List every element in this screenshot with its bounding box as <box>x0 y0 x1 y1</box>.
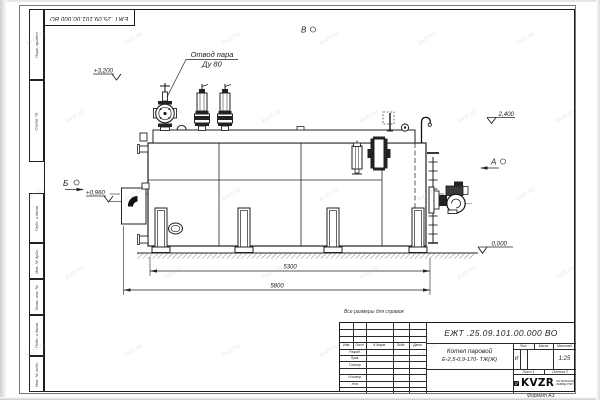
water-level-gauge <box>352 141 362 175</box>
col-data: Дата <box>409 342 426 348</box>
logo-sub2: ЗАВОД РЭП <box>556 383 575 386</box>
role-utv: Утв. <box>340 381 368 387</box>
elevation-mark-ground: 0,000 <box>478 240 513 253</box>
elevation-value: +0,960 <box>86 189 106 196</box>
role-tkontr: Т.контр. <box>340 361 368 367</box>
deck-instruments <box>297 112 409 131</box>
view-label-a: А <box>480 158 506 170</box>
view-label-v: В <box>301 26 316 35</box>
format-label: Формат А3 <box>527 393 554 399</box>
view-label-b: Б <box>63 179 84 191</box>
dimension-value: 5800 <box>270 284 284 290</box>
drawing-sheet: Перв. примен. Справ. № Подп. и дата Инв.… <box>0 0 600 400</box>
doc-number: ЕЖТ .25.09.101.00.000 ВО <box>426 323 576 343</box>
col-ndocum: N докум. <box>366 342 393 348</box>
view-letter: Б <box>63 179 68 188</box>
kvzr-logo-text: KVZR <box>521 377 554 389</box>
elevation-value: 0,000 <box>492 240 508 247</box>
elevation-value: +3,200 <box>94 68 114 75</box>
col-podp: Подп. <box>393 342 409 348</box>
kvzr-logo-icon <box>514 377 519 390</box>
safety-valve-1 <box>195 84 210 131</box>
furnace-door <box>122 183 150 224</box>
view-letter: В <box>301 26 307 35</box>
deck-fitting <box>176 125 188 130</box>
reference-note: Все размеры для справок <box>344 309 404 315</box>
dimension-inner: 5300 <box>150 257 430 295</box>
dimension-value: 5300 <box>283 265 297 271</box>
callout-line2: Ду 80 <box>201 60 222 69</box>
steam-outlet-valve <box>154 83 177 131</box>
product-name-line2: Е-2,5-0,9-170- ТЖ(Ж) <box>442 356 497 364</box>
burner <box>429 182 472 214</box>
hdr-mass: Масса <box>534 343 553 349</box>
safety-valve-2 <box>218 84 233 131</box>
lit-value: И <box>513 349 520 369</box>
ground-line <box>137 253 478 259</box>
product-name-line1: Котел паровой <box>447 348 492 356</box>
elevation-mark-top: +3,200 <box>93 68 121 81</box>
scale-value: 1:25 <box>553 349 576 369</box>
elevation-mark-door: +0,960 <box>86 189 122 202</box>
elevation-mark-deck: 2,400 <box>487 111 515 124</box>
safety-valves <box>195 84 233 131</box>
view-letter: А <box>490 158 496 167</box>
elevation-value: 2,400 <box>498 111 515 118</box>
vent-pipe <box>422 117 432 143</box>
callout-line1: Отвод пара <box>191 50 234 59</box>
title-block: Изм. Лист N докум. Подп. Дата Разраб. Пр… <box>339 322 575 392</box>
company-logo: KVZR КОТЕЛЬНЫЙ ЗАВОД РЭП <box>514 374 575 392</box>
level-indicator <box>368 137 391 171</box>
product-name: Котел паровой Е-2,5-0,9-170- ТЖ(Ж) <box>426 343 513 369</box>
handhole-cover <box>169 223 183 234</box>
